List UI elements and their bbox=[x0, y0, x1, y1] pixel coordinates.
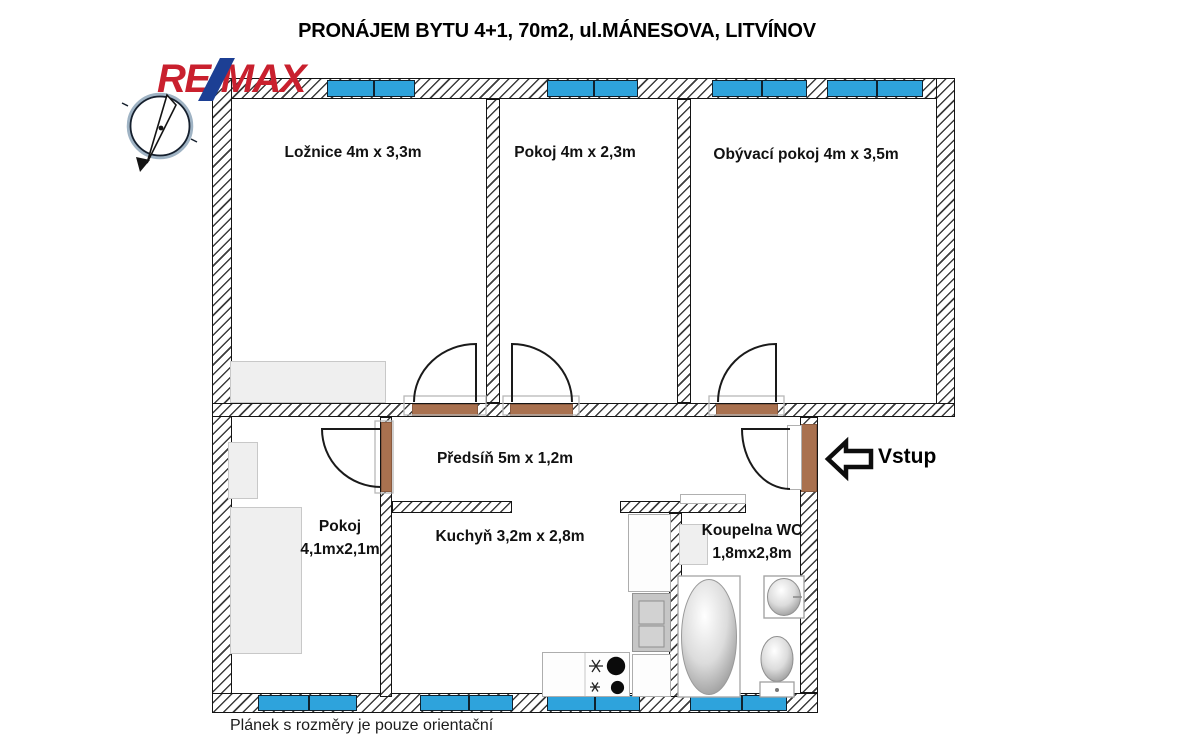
kitchen-counter-corner bbox=[632, 654, 671, 697]
room-label-pokoj-dolni: Pokoj 4,1mx2,1m bbox=[300, 515, 379, 561]
entrance-label: Vstup bbox=[878, 445, 936, 469]
cabinet-pokoj-dolni bbox=[228, 442, 258, 499]
room-label-pokoj-dolni-name: Pokoj bbox=[300, 515, 379, 538]
room-label-predsin: Předsíň 5m x 1,2m bbox=[437, 447, 573, 470]
door-swing-entrance bbox=[742, 429, 790, 489]
wall-loznice-pokoj bbox=[486, 99, 500, 403]
window bbox=[712, 80, 807, 97]
window bbox=[827, 80, 923, 97]
washbasin bbox=[764, 576, 804, 618]
window bbox=[327, 80, 415, 97]
wall-kuchyn-top bbox=[392, 501, 512, 513]
room-label-koupelna-dimensions: 1,8mx2,8m bbox=[702, 542, 803, 565]
room-label-koupelna: Koupelna WC 1,8mx2,8m bbox=[702, 519, 803, 565]
door-swing-loznice bbox=[414, 344, 476, 402]
entrance-arrow-icon bbox=[828, 442, 871, 476]
window bbox=[420, 695, 513, 711]
kitchen-counter bbox=[542, 652, 630, 697]
room-label-pokoj-horni: Pokoj 4m x 2,3m bbox=[514, 141, 635, 164]
door-swing-obyvaci bbox=[718, 344, 776, 402]
fridge bbox=[632, 593, 671, 652]
door-swing-pokoj-horni bbox=[512, 344, 572, 402]
page-title: PRONÁJEM BYTU 4+1, 70m2, ul.MÁNESOVA, LI… bbox=[298, 20, 816, 43]
bathroom-door-leaf bbox=[680, 494, 746, 504]
window bbox=[547, 80, 638, 97]
plan-graphics-overlay bbox=[0, 0, 1200, 744]
remax-logo: RE MAX bbox=[157, 57, 305, 102]
room-label-kuchyn: Kuchyň 3,2m x 2,8m bbox=[435, 525, 584, 548]
bed-loznice bbox=[230, 361, 386, 403]
wall-outer-left bbox=[212, 78, 232, 713]
window bbox=[258, 695, 357, 711]
room-label-loznice: Ložnice 4m x 3,3m bbox=[285, 141, 422, 164]
remax-logo-max: MAX bbox=[221, 57, 305, 102]
door-threshold-entrance bbox=[801, 424, 817, 492]
room-label-obyvaci: Obývací pokoj 4m x 3,5m bbox=[713, 143, 898, 166]
wall-middle-horizontal bbox=[212, 403, 955, 417]
door-threshold-pokoj bbox=[510, 404, 573, 416]
compass-icon bbox=[122, 95, 197, 172]
toilet bbox=[760, 637, 794, 698]
floor-plan: PRONÁJEM BYTU 4+1, 70m2, ul.MÁNESOVA, LI… bbox=[0, 0, 1200, 744]
entrance-door-leaf bbox=[787, 425, 802, 490]
door-threshold-pokoj-dolni bbox=[381, 422, 392, 492]
door-swing-pokoj-dolni bbox=[322, 429, 381, 487]
room-label-pokoj-dolni-dimensions: 4,1mx2,1m bbox=[300, 538, 379, 561]
room-label-koupelna-name: Koupelna WC bbox=[702, 519, 803, 542]
kitchen-tall-cabinet bbox=[628, 514, 671, 592]
wall-pokoj-obyvaci bbox=[677, 99, 691, 403]
bed-pokoj-dolni bbox=[230, 507, 302, 654]
door-threshold-loznice bbox=[412, 404, 478, 416]
footnote: Plánek s rozměry je pouze orientační bbox=[230, 717, 493, 735]
window bbox=[690, 695, 787, 711]
window bbox=[547, 695, 640, 711]
wall-outer-right-top bbox=[936, 78, 955, 417]
door-threshold-obyvaci bbox=[716, 404, 778, 416]
bathtub bbox=[678, 576, 740, 697]
